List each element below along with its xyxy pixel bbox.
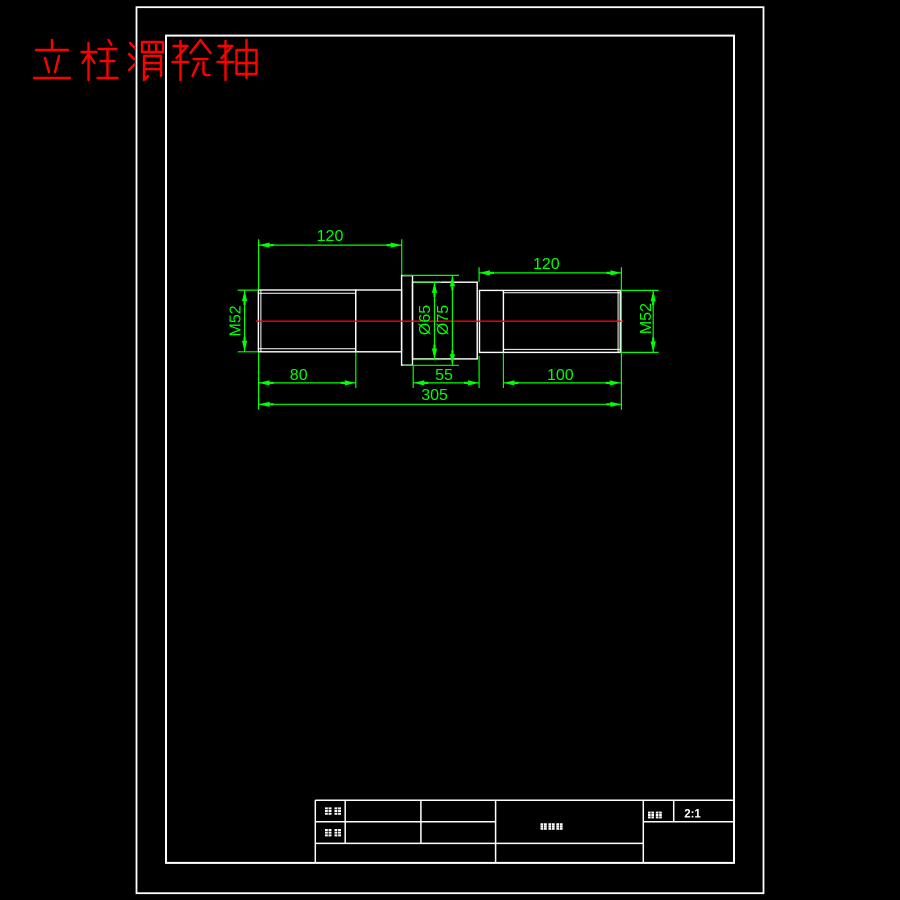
- svg-text:M52: M52: [227, 305, 244, 336]
- svg-text:120: 120: [317, 228, 344, 245]
- svg-text:Ø65: Ø65: [417, 305, 434, 335]
- svg-text:Ø75: Ø75: [435, 305, 452, 335]
- svg-text:2:1: 2:1: [684, 808, 701, 820]
- svg-text:55: 55: [435, 367, 453, 384]
- svg-text:M52: M52: [638, 303, 655, 334]
- svg-text:120: 120: [533, 256, 560, 273]
- svg-text:305: 305: [421, 387, 448, 404]
- svg-text:80: 80: [290, 367, 308, 384]
- svg-text:100: 100: [547, 367, 574, 384]
